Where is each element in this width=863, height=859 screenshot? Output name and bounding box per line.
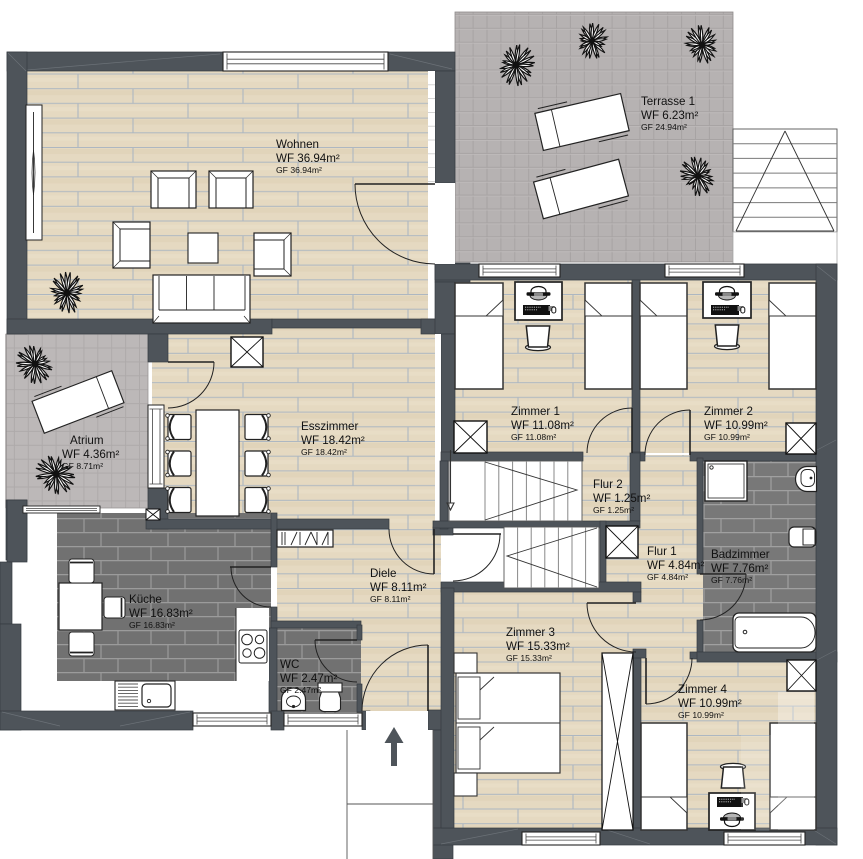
- svg-text:WF 4.84m²: WF 4.84m²: [647, 559, 704, 572]
- svg-text:GF 15.33m²: GF 15.33m²: [506, 653, 552, 663]
- svg-text:WF 18.42m²: WF 18.42m²: [301, 434, 365, 447]
- svg-text:Atrium: Atrium: [70, 434, 104, 447]
- svg-text:GF 24.94m²: GF 24.94m²: [641, 122, 687, 132]
- svg-text:GF 4.84m²: GF 4.84m²: [647, 572, 688, 582]
- svg-text:GF 7.76m²: GF 7.76m²: [711, 575, 752, 585]
- svg-text:Zimmer 1: Zimmer 1: [511, 405, 560, 418]
- svg-text:WF 36.94m²: WF 36.94m²: [276, 152, 340, 165]
- svg-text:Zimmer 3: Zimmer 3: [506, 626, 555, 639]
- svg-text:Esszimmer: Esszimmer: [301, 420, 358, 433]
- svg-text:Küche: Küche: [129, 593, 162, 606]
- svg-text:WF 7.76m²: WF 7.76m²: [711, 562, 768, 575]
- svg-text:Zimmer 2: Zimmer 2: [704, 405, 753, 418]
- svg-text:Terrasse 1: Terrasse 1: [641, 95, 695, 108]
- svg-text:WF 8.11m²: WF 8.11m²: [370, 581, 427, 594]
- svg-text:WF 15.33m²: WF 15.33m²: [506, 640, 570, 653]
- svg-text:WC: WC: [280, 658, 299, 671]
- svg-text:WF 4.36m²: WF 4.36m²: [62, 448, 119, 461]
- svg-text:GF 8.11m²: GF 8.11m²: [370, 594, 411, 604]
- svg-text:GF 11.08m²: GF 11.08m²: [511, 432, 556, 442]
- svg-text:GF 18.42m²: GF 18.42m²: [301, 447, 347, 457]
- svg-text:GF 2.47m²: GF 2.47m²: [280, 685, 321, 695]
- svg-text:GF 1.25m²: GF 1.25m²: [593, 505, 634, 515]
- svg-text:WF 2.47m²: WF 2.47m²: [280, 672, 337, 685]
- svg-text:GF 8.71m²: GF 8.71m²: [62, 461, 103, 471]
- svg-text:WF 1.25m²: WF 1.25m²: [593, 492, 650, 505]
- svg-text:WF 16.83m²: WF 16.83m²: [129, 607, 193, 620]
- svg-text:WF 11.08m²: WF 11.08m²: [511, 419, 574, 432]
- svg-text:GF 36.94m²: GF 36.94m²: [276, 165, 322, 175]
- svg-text:Wohnen: Wohnen: [276, 138, 319, 151]
- svg-text:Flur 2: Flur 2: [593, 478, 623, 491]
- svg-text:WF 6.23m²: WF 6.23m²: [641, 109, 698, 122]
- svg-text:Diele: Diele: [370, 567, 396, 580]
- svg-text:Flur 1: Flur 1: [647, 545, 677, 558]
- svg-text:Badzimmer: Badzimmer: [711, 548, 770, 561]
- svg-text:GF 16.83m²: GF 16.83m²: [129, 620, 175, 630]
- svg-text:GF 10.99m²: GF 10.99m²: [704, 432, 750, 442]
- svg-text:Zimmer 4: Zimmer 4: [678, 683, 728, 696]
- svg-text:GF 10.99m²: GF 10.99m²: [678, 710, 724, 720]
- svg-text:WF 10.99m²: WF 10.99m²: [678, 697, 742, 710]
- svg-text:WF 10.99m²: WF 10.99m²: [704, 419, 768, 432]
